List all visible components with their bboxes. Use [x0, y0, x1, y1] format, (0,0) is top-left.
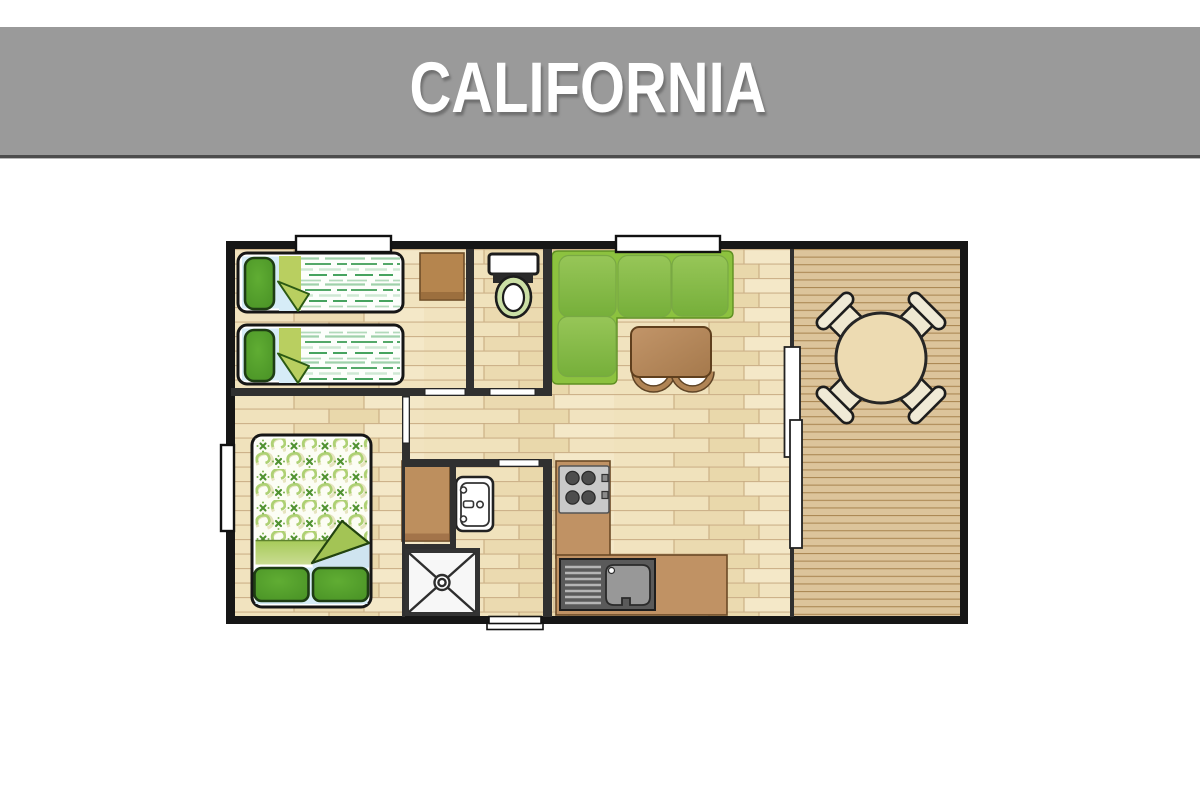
svg-text:CALIFORNIA: CALIFORNIA — [410, 49, 767, 128]
